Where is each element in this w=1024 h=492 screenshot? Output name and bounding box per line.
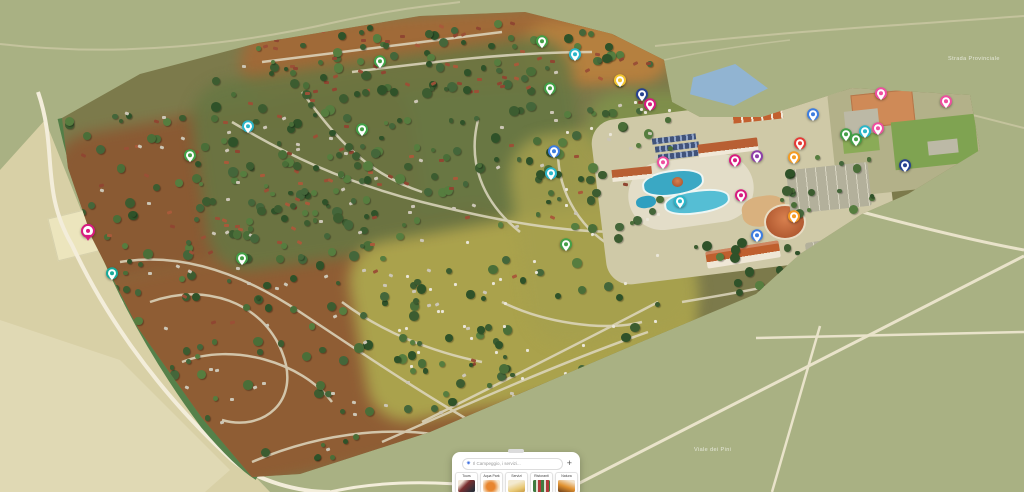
services-icon: [508, 480, 525, 492]
map-marker[interactable]: [236, 252, 248, 264]
map-marker[interactable]: [735, 189, 747, 201]
restaurants-icon: [533, 480, 550, 492]
map-marker[interactable]: [545, 167, 557, 179]
map-marker[interactable]: [644, 98, 656, 110]
map-marker[interactable]: [536, 35, 548, 47]
map-marker[interactable]: [940, 95, 952, 107]
map-marker[interactable]: [788, 210, 800, 222]
category-chips: Tours Aqua Park Servizi Ristoranti Natur…: [455, 472, 578, 492]
campsite-map-app: Strada Provinciale Viale dei Pini ✷ Il C…: [0, 0, 1024, 492]
map-marker[interactable]: [184, 149, 196, 161]
map-marker[interactable]: [875, 87, 887, 99]
map-marker[interactable]: [242, 120, 254, 132]
category-chip-servizi[interactable]: Servizi: [505, 472, 528, 492]
add-button[interactable]: +: [567, 459, 572, 468]
map-marker[interactable]: [544, 82, 556, 94]
aquapark-icon: [483, 480, 500, 492]
drag-handle[interactable]: [508, 449, 524, 453]
map-marker[interactable]: [899, 159, 911, 171]
search-placeholder: Il Campeggio, i servizi...: [473, 461, 521, 466]
search-input[interactable]: ✷ Il Campeggio, i servizi...: [462, 458, 563, 470]
map-marker[interactable]: [872, 122, 884, 134]
map-marker[interactable]: [859, 125, 871, 137]
map-marker[interactable]: [81, 224, 95, 238]
category-chip-natura[interactable]: Natura: [555, 472, 578, 492]
map-marker[interactable]: [374, 55, 386, 67]
category-chip-ristoranti[interactable]: Ristoranti: [530, 472, 553, 492]
map-marker[interactable]: [569, 48, 581, 60]
map-marker[interactable]: [657, 156, 669, 168]
bottom-toolbar: ✷ Il Campeggio, i servizi... + Tours Aqu…: [452, 452, 580, 492]
category-chip-tours[interactable]: Tours: [455, 472, 478, 492]
map-marker[interactable]: [674, 195, 686, 207]
map-marker[interactable]: [788, 151, 800, 163]
map-marker[interactable]: [807, 108, 819, 120]
map-marker[interactable]: [794, 137, 806, 149]
tours-icon: [458, 480, 475, 492]
category-chip-aquapark[interactable]: Aqua Park: [480, 472, 503, 492]
map-marker[interactable]: [729, 154, 741, 166]
map-marker[interactable]: [614, 74, 626, 86]
map-marker[interactable]: [751, 150, 763, 162]
map-marker[interactable]: [751, 229, 763, 241]
search-row: ✷ Il Campeggio, i servizi... +: [462, 457, 572, 470]
map-marker-layer: [0, 0, 1024, 492]
map-marker[interactable]: [548, 145, 560, 157]
map-marker[interactable]: [560, 238, 572, 250]
map-marker[interactable]: [356, 123, 368, 135]
map-marker[interactable]: [106, 267, 118, 279]
sparkle-search-icon: ✷: [466, 461, 471, 467]
nature-icon: [558, 480, 575, 492]
